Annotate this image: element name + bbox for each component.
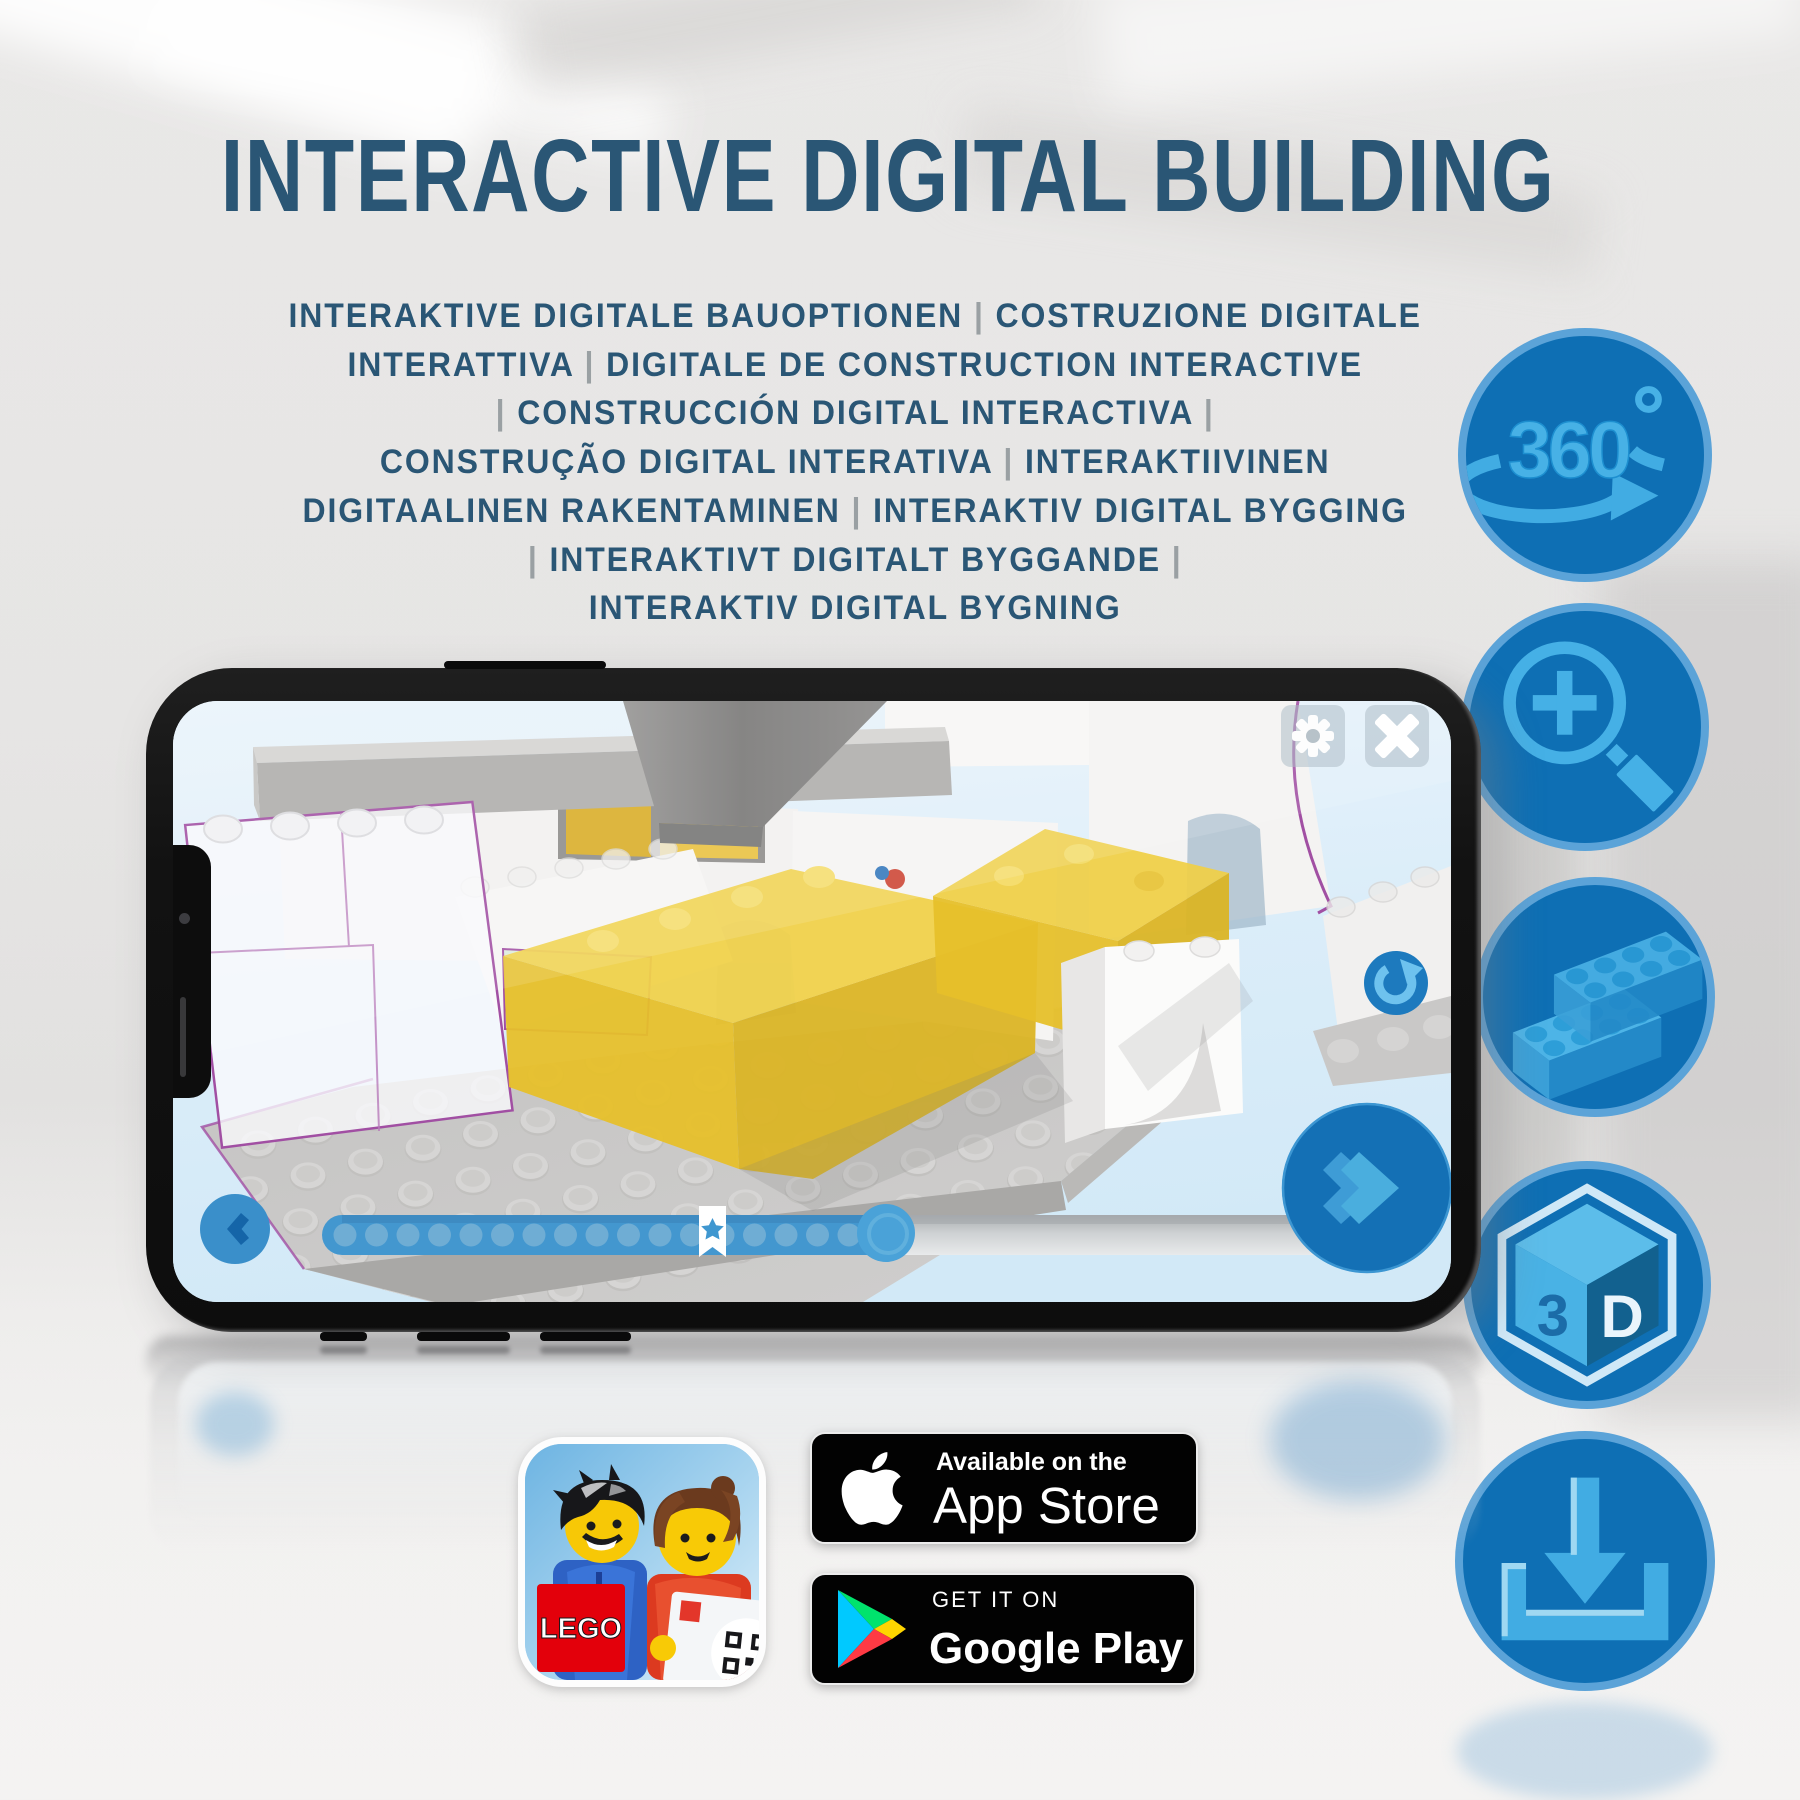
svg-text:App Store: App Store [933,1477,1160,1534]
svg-text:360: 360 [1508,405,1629,494]
svg-text:3: 3 [1537,1283,1569,1348]
svg-text:GET IT ON: GET IT ON [932,1587,1059,1612]
svg-text:Available on the: Available on the [936,1448,1127,1476]
svg-text:Google Play: Google Play [929,1624,1184,1673]
svg-text:D: D [1601,1283,1644,1350]
svg-text:LEGO: LEGO [540,1613,622,1645]
